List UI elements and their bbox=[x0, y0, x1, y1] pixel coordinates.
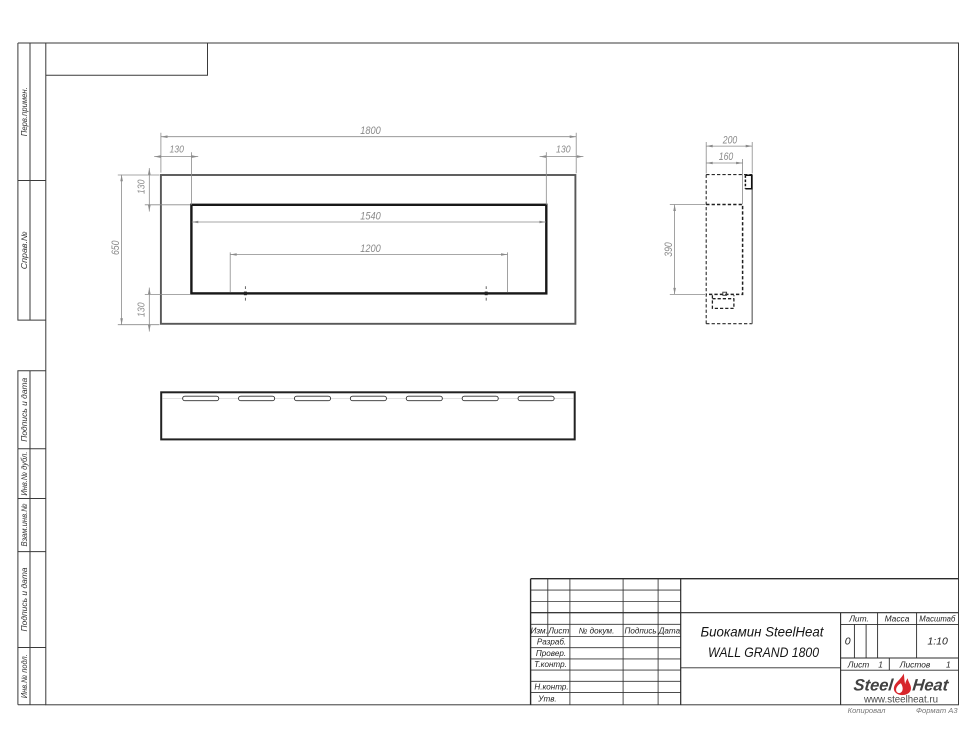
svg-text:Т.контр.: Т.контр. bbox=[534, 660, 567, 669]
svg-text:Копировал: Копировал bbox=[848, 706, 886, 715]
svg-text:130: 130 bbox=[136, 179, 147, 194]
svg-text:130: 130 bbox=[556, 145, 571, 156]
svg-text:Утв.: Утв. bbox=[537, 694, 556, 703]
svg-text:160: 160 bbox=[719, 151, 734, 163]
svg-text:Перв.примен.: Перв.примен. bbox=[20, 87, 29, 136]
svg-text:130: 130 bbox=[136, 302, 147, 317]
svg-text:1540: 1540 bbox=[360, 210, 381, 222]
svg-text:1200: 1200 bbox=[360, 243, 381, 255]
svg-text:130: 130 bbox=[169, 145, 184, 156]
svg-text:1: 1 bbox=[878, 660, 883, 670]
svg-text:Лит.: Лит. bbox=[848, 614, 869, 624]
svg-text:1: 1 bbox=[946, 660, 951, 670]
svg-text:Heat: Heat bbox=[912, 676, 951, 695]
svg-text:Лист: Лист bbox=[547, 626, 569, 635]
svg-text:Н.контр.: Н.контр. bbox=[534, 683, 568, 692]
svg-text:Лист: Лист bbox=[847, 660, 870, 670]
svg-text:Дата: Дата bbox=[658, 626, 681, 635]
svg-text:Провер.: Провер. bbox=[536, 649, 566, 658]
svg-text:1:10: 1:10 bbox=[927, 635, 948, 647]
svg-text:Взам.инв.№: Взам.инв.№ bbox=[20, 503, 29, 546]
svg-text:Масштаб: Масштаб bbox=[919, 614, 955, 624]
svg-text:Инв.№ дубл.: Инв.№ дубл. bbox=[20, 452, 29, 496]
svg-text:Подпись и дата: Подпись и дата bbox=[20, 567, 29, 631]
svg-text:Масса: Масса bbox=[885, 614, 910, 624]
svg-text:390: 390 bbox=[663, 242, 675, 257]
svg-text:www.steelheat.ru: www.steelheat.ru bbox=[863, 694, 938, 705]
svg-text:650: 650 bbox=[110, 240, 122, 255]
svg-text:WALL GRAND 1800: WALL GRAND 1800 bbox=[708, 644, 819, 660]
svg-text:Подпись: Подпись bbox=[625, 626, 657, 635]
svg-text:№ докум.: № докум. bbox=[579, 626, 615, 635]
svg-text:Разраб.: Разраб. bbox=[537, 638, 566, 647]
svg-text:Steel: Steel bbox=[853, 676, 895, 695]
svg-text:Подпись и дата: Подпись и дата bbox=[20, 377, 29, 441]
svg-text:Формат А3: Формат А3 bbox=[916, 706, 958, 715]
svg-text:1800: 1800 bbox=[360, 125, 381, 137]
svg-text:200: 200 bbox=[722, 134, 738, 146]
svg-text:Изм.: Изм. bbox=[531, 626, 548, 635]
svg-text:0: 0 bbox=[845, 636, 851, 648]
svg-text:Инв.№ подл.: Инв.№ подл. bbox=[20, 654, 29, 698]
svg-text:Биокамин SteelHeat: Биокамин SteelHeat bbox=[701, 623, 825, 639]
svg-text:Справ.№: Справ.№ bbox=[20, 231, 29, 269]
svg-text:Листов: Листов bbox=[899, 660, 931, 670]
